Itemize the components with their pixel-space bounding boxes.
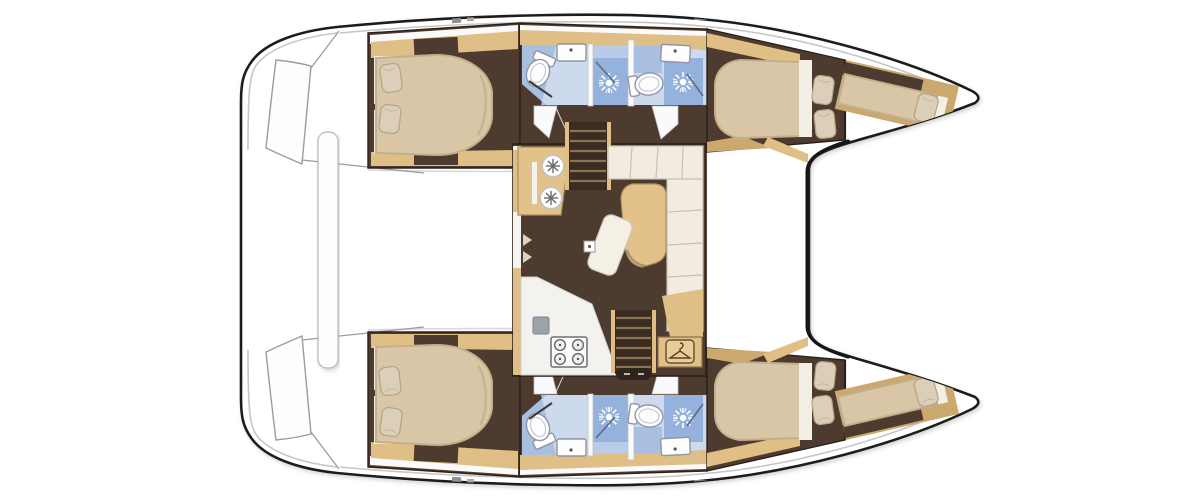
saloon	[513, 122, 706, 380]
bathroom-wall	[588, 44, 593, 106]
sink-icon	[661, 44, 691, 62]
bathroom-forward	[628, 40, 707, 106]
companionway-stairs-port	[611, 310, 656, 380]
floor-plan-canvas	[0, 0, 1200, 500]
aft-wall-trim	[513, 268, 521, 375]
pillow	[814, 109, 837, 139]
bed-linen	[799, 60, 812, 137]
bathrooms	[520, 23, 707, 145]
shower-shelf	[592, 46, 628, 60]
sink-icon	[557, 44, 586, 61]
foredeck-shadow	[814, 148, 846, 350]
deck-fitting	[452, 18, 461, 24]
pillow	[378, 104, 401, 134]
companionway-stairs-starboard	[565, 122, 611, 190]
galley-twin-sinks	[518, 147, 570, 215]
pillow	[811, 75, 835, 106]
open-locker	[414, 37, 459, 55]
floor-plan-page	[0, 0, 1200, 500]
wardrobe	[658, 337, 702, 367]
table-pedestal	[584, 241, 595, 252]
stairs-landing	[616, 368, 651, 380]
cockpit-bench	[318, 132, 338, 368]
double-bed	[715, 60, 801, 138]
counter-slot	[532, 162, 537, 204]
coachroof-front-frame	[808, 142, 848, 356]
stove-icon	[551, 337, 587, 367]
bath-panel	[634, 46, 662, 73]
cabin-aft	[368, 23, 520, 168]
pillow	[379, 63, 403, 94]
bathroom-aft	[522, 44, 628, 106]
galley-sink	[533, 317, 549, 334]
